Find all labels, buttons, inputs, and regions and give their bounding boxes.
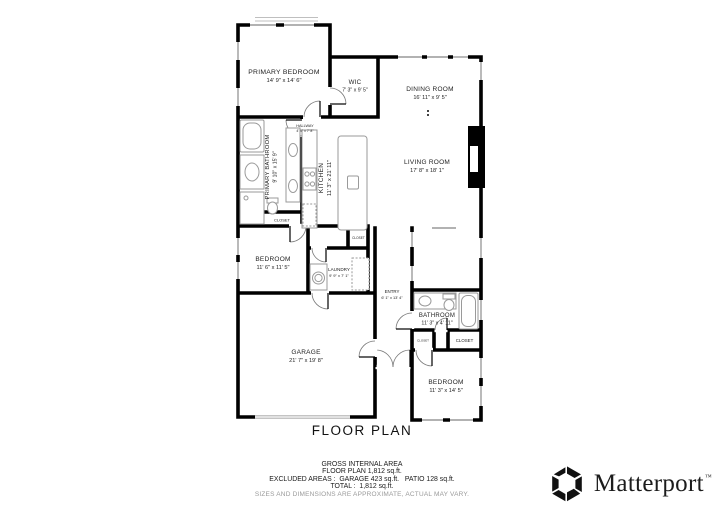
svg-text:16' 11" x 9' 5": 16' 11" x 9' 5"	[413, 95, 446, 101]
garage-door	[255, 415, 350, 419]
vanity-primary-icon	[240, 155, 264, 189]
svg-text:BEDROOM: BEDROOM	[255, 256, 290, 263]
svg-text:11' 6" x 11' 5": 11' 6" x 11' 5"	[257, 265, 290, 271]
svg-text:BATHROOM: BATHROOM	[419, 313, 455, 319]
room-label-closet-small: CLOSET	[417, 339, 429, 343]
toilet2-icon	[443, 294, 455, 311]
matterport-wordmark: Matterport™	[594, 470, 712, 498]
svg-text:9' 10" x 15' 9": 9' 10" x 15' 9"	[273, 151, 279, 182]
bathtub2-icon	[459, 293, 478, 329]
kitchen-island-icon	[338, 136, 367, 230]
svg-text:PRIMARY BATHROOM: PRIMARY BATHROOM	[265, 135, 271, 200]
svg-text:CLOSET: CLOSET	[456, 338, 474, 343]
svg-text:ENTRY: ENTRY	[385, 289, 400, 294]
utility-icon	[352, 258, 369, 290]
matterport-logo-icon	[547, 464, 587, 504]
room-label-hallway: HALLWAY 4' 9" x 7' 8"	[296, 124, 314, 133]
room-label-closet-hall: CLOSET	[274, 218, 291, 223]
matterport-logo: Matterport™	[547, 464, 712, 504]
svg-text:LAUNDRY: LAUNDRY	[328, 267, 350, 272]
plan-title: FLOOR PLAN	[0, 423, 720, 438]
svg-text:14' 9" x 14' 6": 14' 9" x 14' 6"	[266, 78, 301, 84]
svg-text:7' 3" x 9' 5": 7' 3" x 9' 5"	[342, 88, 368, 94]
room-label-garage: GARAGE 21' 7" x 19' 8"	[289, 349, 323, 364]
deck-edge	[255, 18, 318, 22]
room-label-dining-room: DINING ROOM 16' 11" x 9' 5"	[406, 86, 454, 101]
svg-text:HALLWAY: HALLWAY	[296, 124, 314, 128]
floor-plan-page: PRIMARY BEDROOM 14' 9" x 14' 6" WIC 7' 3…	[0, 0, 720, 508]
room-label-primary-bedroom: PRIMARY BEDROOM 14' 9" x 14' 6"	[248, 69, 320, 84]
svg-text:LIVING ROOM: LIVING ROOM	[404, 159, 450, 166]
room-label-bedroom-3: BEDROOM 11' 3" x 14' 5"	[428, 379, 463, 394]
dishwasher-icon	[303, 204, 316, 226]
svg-text:CLOSET: CLOSET	[352, 236, 365, 240]
room-label-bedroom-2: BEDROOM 11' 6" x 11' 5"	[255, 256, 290, 271]
svg-text:GARAGE: GARAGE	[291, 349, 321, 356]
svg-text:11' 3" x 14' 5": 11' 3" x 14' 5"	[429, 388, 462, 394]
stove-icon	[303, 168, 316, 190]
svg-text:PRIMARY BEDROOM: PRIMARY BEDROOM	[248, 69, 320, 76]
svg-text:21' 7" x 19' 8": 21' 7" x 19' 8"	[289, 358, 323, 364]
svg-text:6' 1" x 13' 4": 6' 1" x 13' 4"	[381, 295, 403, 300]
shower-primary-icon	[240, 192, 264, 224]
svg-text:KITCHEN: KITCHEN	[318, 163, 325, 193]
room-label-primary-bathroom: PRIMARY BATHROOM 9' 10" x 15' 9"	[265, 135, 279, 200]
room-label-living-room: LIVING ROOM 17' 8" x 18' 1"	[404, 159, 450, 174]
room-label-wic: WIC 7' 3" x 9' 5"	[342, 79, 368, 94]
svg-text:4' 9" x 7' 8": 4' 9" x 7' 8"	[296, 129, 314, 133]
double-sink-vanity-icon	[286, 128, 300, 202]
room-label-kitchen: KITCHEN 11' 3" x 21' 11"	[318, 160, 333, 196]
washer-icon	[310, 264, 327, 290]
svg-text:11' 3" x 4' 11": 11' 3" x 4' 11"	[421, 321, 452, 327]
svg-text:9' 9" x 7' 1": 9' 9" x 7' 1"	[329, 273, 349, 278]
trademark-symbol: ™	[705, 473, 712, 481]
svg-text:17' 8" x 18' 1": 17' 8" x 18' 1"	[410, 168, 444, 174]
svg-text:CLOSET: CLOSET	[274, 218, 291, 223]
fireplace	[468, 126, 485, 188]
svg-text:WIC: WIC	[349, 79, 362, 86]
svg-text:11' 3" x 21' 11": 11' 3" x 21' 11"	[327, 160, 333, 196]
room-label-closet-laundry: CLOSET	[352, 236, 365, 240]
room-label-entry: ENTRY 6' 1" x 13' 4"	[381, 289, 403, 300]
room-label-closet-bedroom-3: CLOSET	[456, 338, 474, 343]
svg-text:DINING ROOM: DINING ROOM	[406, 86, 454, 93]
room-label-laundry: LAUNDRY 9' 9" x 7' 1"	[328, 267, 350, 278]
vent-marker	[427, 110, 429, 116]
svg-text:BEDROOM: BEDROOM	[428, 379, 463, 386]
bathtub-primary-icon	[240, 120, 264, 152]
svg-text:CLOSET: CLOSET	[417, 339, 429, 343]
room-label-bathroom-2: BATHROOM 11' 3" x 4' 11"	[419, 313, 455, 327]
